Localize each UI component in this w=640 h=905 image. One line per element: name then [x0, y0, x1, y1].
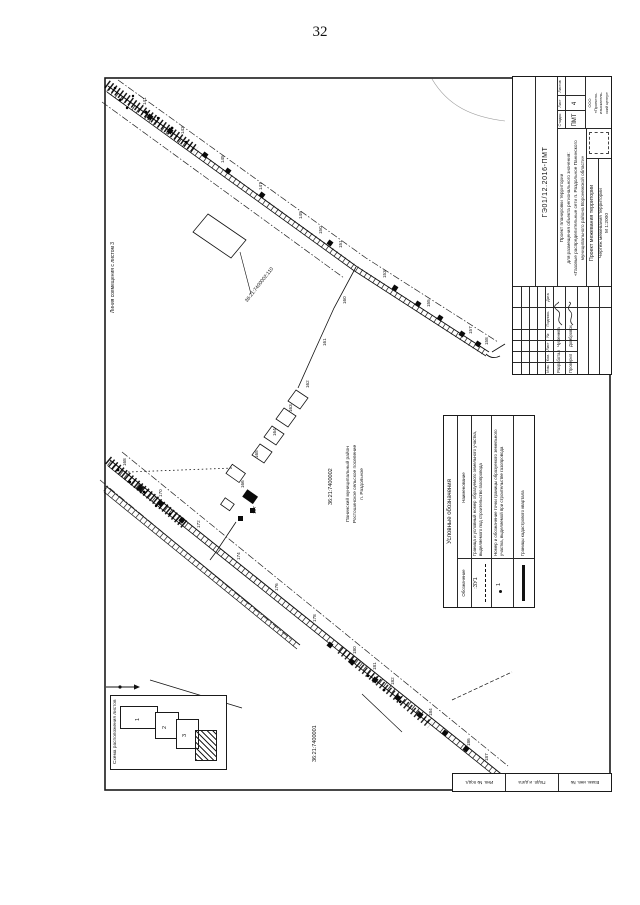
- signature-developer: [553, 301, 565, 327]
- stamp-stage-value: ПМТ: [565, 111, 585, 129]
- legend-table: Условные обозначения Обозначение Наимено…: [443, 415, 535, 608]
- cadastral-quarter-lower: 36:21:7400001: [312, 725, 319, 762]
- stamp-col-data: Дата: [546, 287, 553, 308]
- legend-dashdot-line: [485, 564, 486, 602]
- stamp-sheets-label: Листов: [558, 77, 565, 96]
- legend-text-quarter: Границы кадастрового квартала: [520, 418, 530, 556]
- stamp-col-podpis: Подпись: [546, 308, 553, 330]
- stamp-role-developer: Разработал: [556, 347, 565, 373]
- organization-line: ский центр»: [604, 78, 610, 128]
- scanned-document-page: { "page": { "number": "32" }, "stamp": {…: [0, 0, 640, 905]
- settlement-line-1: Панинский муниципальный район: [346, 428, 352, 540]
- project-name-line: муниципального района Воронежской област…: [579, 131, 586, 285]
- side-cell-inv: Инв. № подл.: [453, 774, 506, 791]
- stamp-stage-label: Стадия: [558, 111, 565, 129]
- stamp-col-izm: Изм.: [546, 363, 553, 374]
- north-arrow: [106, 684, 140, 689]
- legend-col-designation: Обозначение: [461, 559, 469, 607]
- settlement-line-2: Ростошинское сельское поселение: [353, 428, 359, 540]
- legend-symbol-point: 1: [496, 574, 504, 586]
- stamp-sheet-label: Лист: [558, 96, 565, 111]
- stamp-doc-type: Проект межевания территории: [586, 159, 598, 287]
- inset-title: Схема расположения листов: [113, 699, 119, 764]
- stamp-name-developer: Чуфенева: [556, 325, 565, 347]
- side-cell-vzam: Взам. инв. №: [559, 774, 611, 791]
- stamp-mark-box: [589, 132, 609, 154]
- inset-number-2: 2: [162, 726, 169, 729]
- project-name-line: для размещения объекта регионального зна…: [565, 131, 572, 285]
- title-block: Изм. Кол. Лист № Подпись Дата Разработал…: [512, 76, 612, 375]
- project-name-line: «Газовые распределительные сети п. Раздо…: [572, 131, 579, 285]
- project-name-line: Проект планировки территории: [558, 131, 565, 285]
- settlement-line-3: п. Раздольное: [360, 428, 366, 540]
- legend-title: Условные обозначения: [444, 416, 457, 607]
- stamp-col-list: Лист: [546, 341, 553, 352]
- stamp-col-kol: Кол.: [546, 352, 553, 363]
- legend-thick-line: [522, 565, 525, 601]
- stamp-doc-number: ГЭ01/12.2016-ПМТ: [535, 77, 557, 287]
- stamp-sheets-value: [565, 77, 585, 96]
- legend-symbol-parcel: :ЗУ1: [473, 561, 481, 605]
- inset-number-1: 1: [135, 718, 142, 721]
- stamp-col-ndok: №: [546, 330, 553, 341]
- cadastral-quarter-upper: 36:21:7400002: [328, 468, 335, 505]
- stamp-organization: ООО «Проектно- изыскатель- ский центр»: [587, 78, 610, 128]
- side-cell-podp: Подп. и дата: [506, 774, 559, 791]
- signature-checker: [565, 301, 577, 327]
- legend-text-parcel: Граница и условный номер образуемого зем…: [472, 418, 490, 556]
- inset-sheet-current: [195, 730, 217, 761]
- legend-point-dot: [499, 590, 502, 593]
- stamp-scale: М 1:2000: [605, 159, 611, 287]
- stamp-sheet-value: 4: [565, 96, 585, 111]
- stamp-role-checker: Проверил: [568, 347, 577, 373]
- legend-col-name: Наименование: [461, 416, 469, 559]
- stamp-project-name: Проект планировки территории для размеще…: [558, 131, 586, 285]
- stamp-name-checker: Домбровская: [568, 325, 577, 347]
- side-column-strip: Взам. инв. № Подп. и дата Инв. № подл.: [452, 773, 612, 792]
- sheet-join-note: Линия совмещения с листом 3: [110, 242, 116, 313]
- legend-text-point: Номер и обозначение точки границы образу…: [493, 418, 512, 556]
- inset-number-3: 3: [182, 734, 189, 737]
